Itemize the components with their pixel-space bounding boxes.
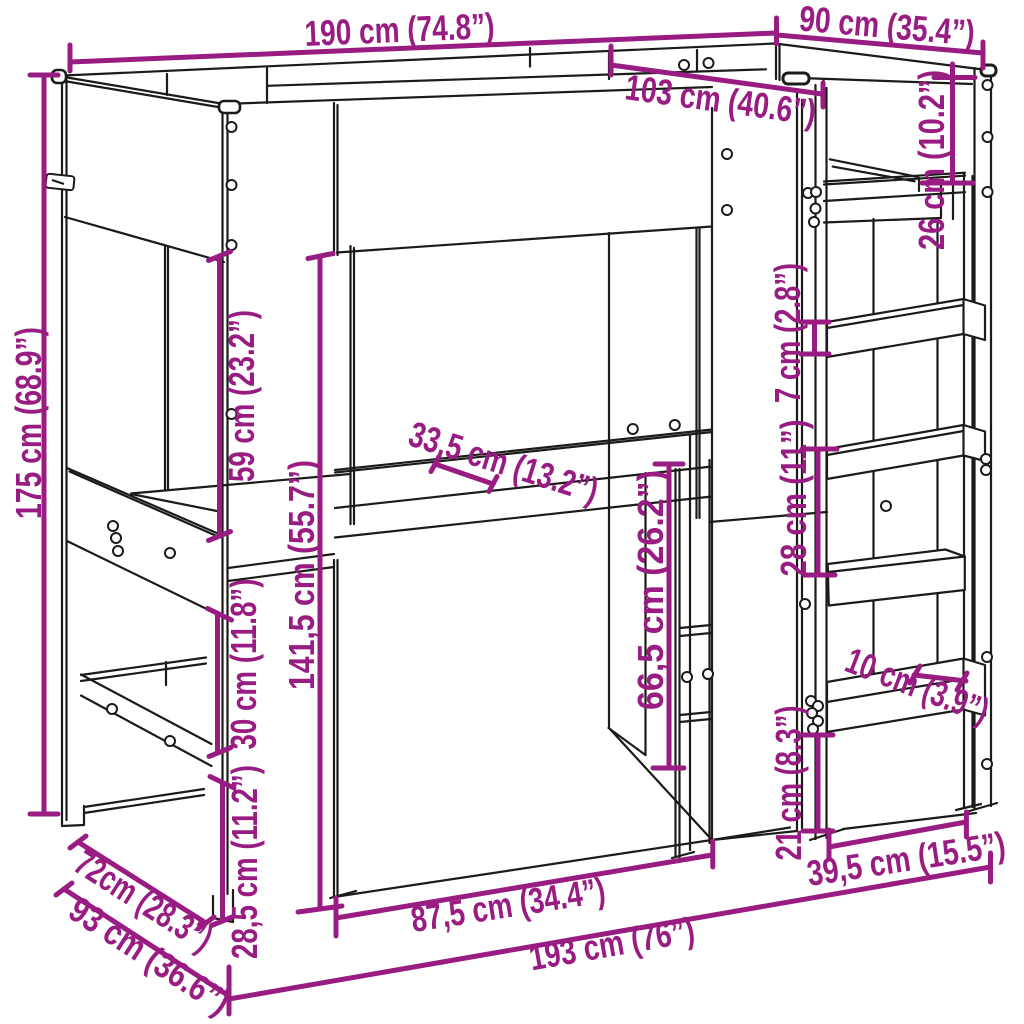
svg-text:26 cm (10.2”): 26 cm (10.2”) <box>911 70 952 250</box>
svg-text:141,5 cm (55.7”): 141,5 cm (55.7”) <box>281 460 322 690</box>
svg-text:30 cm (11.8”): 30 cm (11.8”) <box>223 579 264 750</box>
svg-text:59 cm (23.2”): 59 cm (23.2”) <box>221 310 262 482</box>
svg-text:28 cm (11”): 28 cm (11”) <box>773 420 814 577</box>
svg-text:190 cm (74.8”): 190 cm (74.8”) <box>304 5 496 54</box>
svg-text:175 cm (68.9”): 175 cm (68.9”) <box>8 327 49 519</box>
svg-text:7 cm (2.8”): 7 cm (2.8”) <box>767 263 808 403</box>
svg-text:21 cm (8.3”): 21 cm (8.3”) <box>768 706 809 861</box>
svg-text:66,5 cm (26.2”): 66,5 cm (26.2”) <box>630 470 671 710</box>
svg-text:28,5 cm (11.2”): 28,5 cm (11.2”) <box>224 765 265 959</box>
